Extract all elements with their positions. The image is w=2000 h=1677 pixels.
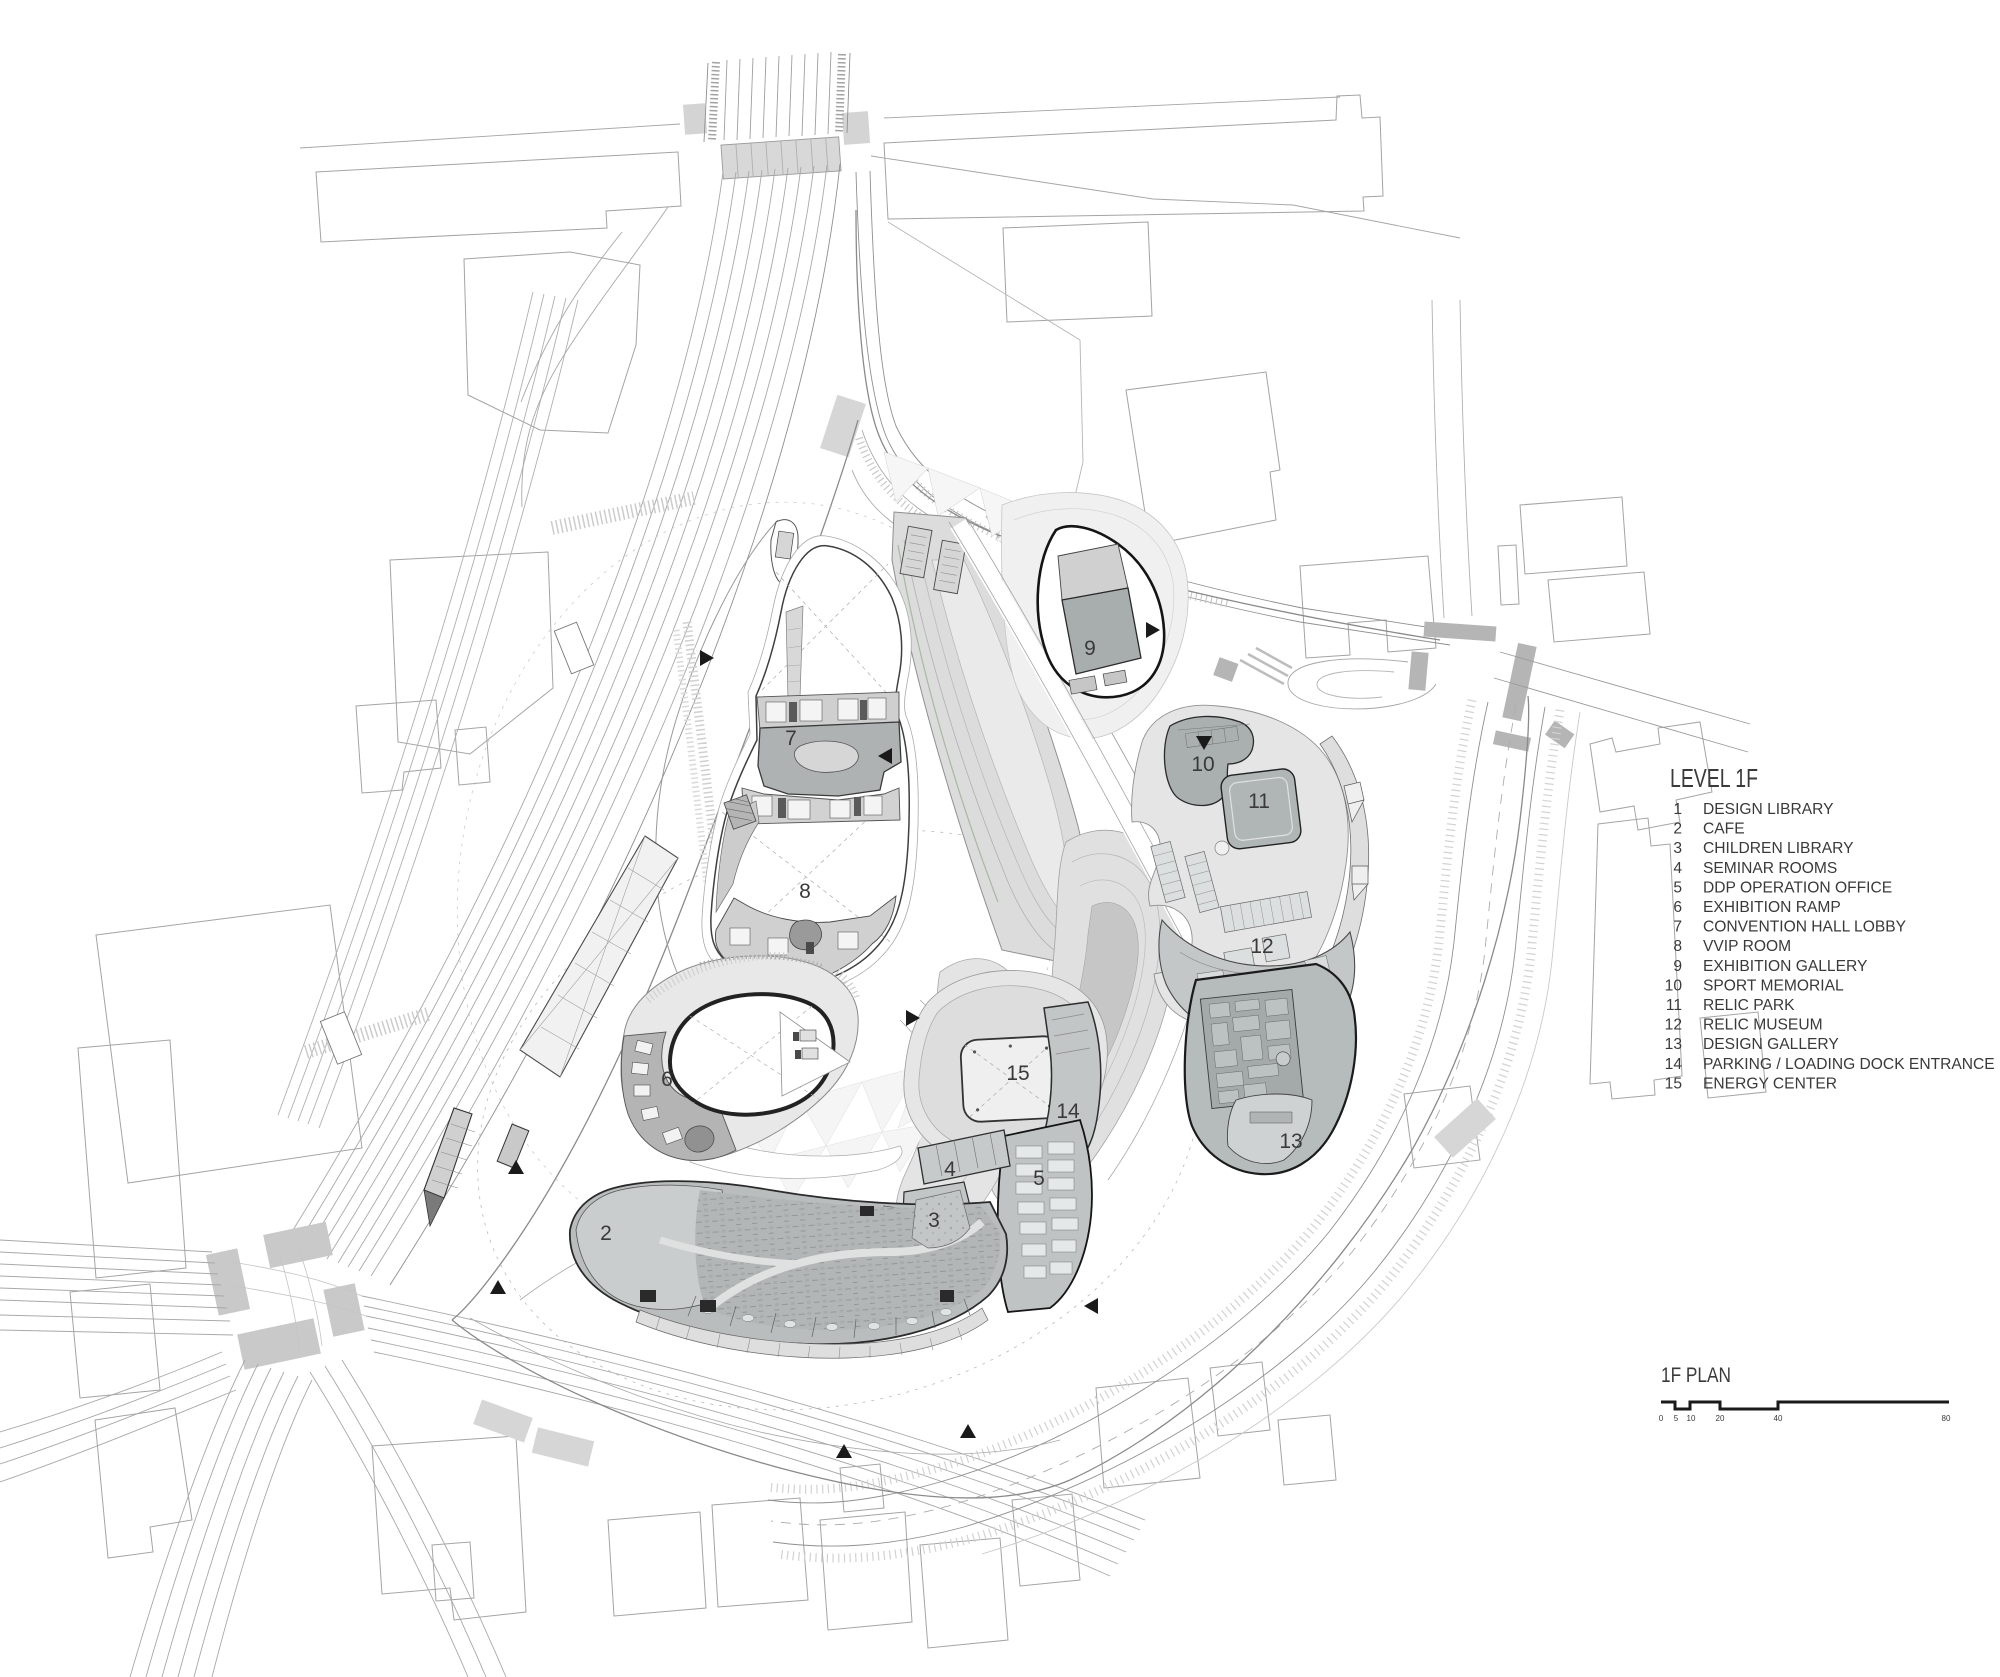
svg-text:3: 3 bbox=[1673, 840, 1682, 857]
svg-text:SEMINAR ROOMS: SEMINAR ROOMS bbox=[1703, 860, 1837, 877]
svg-text:9: 9 bbox=[1673, 958, 1682, 975]
svg-text:DDP OPERATION OFFICE: DDP OPERATION OFFICE bbox=[1703, 879, 1892, 896]
svg-text:13: 13 bbox=[1279, 1130, 1302, 1153]
svg-text:2: 2 bbox=[600, 1222, 612, 1245]
svg-text:7: 7 bbox=[1673, 919, 1682, 936]
svg-text:20: 20 bbox=[1716, 1414, 1725, 1423]
svg-text:12: 12 bbox=[1665, 1017, 1682, 1034]
svg-text:PARKING / LOADING DOCK ENTRANC: PARKING / LOADING DOCK ENTRANCE bbox=[1703, 1056, 1995, 1073]
svg-text:14: 14 bbox=[1056, 1100, 1080, 1123]
svg-text:11: 11 bbox=[1666, 997, 1682, 1014]
svg-text:12: 12 bbox=[1250, 935, 1273, 958]
svg-text:DESIGN LIBRARY: DESIGN LIBRARY bbox=[1703, 801, 1834, 818]
svg-text:RELIC MUSEUM: RELIC MUSEUM bbox=[1703, 1017, 1823, 1034]
svg-text:9: 9 bbox=[1084, 637, 1096, 660]
svg-text:6: 6 bbox=[1673, 899, 1682, 916]
svg-text:4: 4 bbox=[1673, 860, 1682, 877]
svg-text:CONVENTION HALL LOBBY: CONVENTION HALL LOBBY bbox=[1703, 919, 1907, 936]
svg-text:13: 13 bbox=[1665, 1036, 1682, 1053]
svg-text:4: 4 bbox=[944, 1158, 956, 1181]
svg-text:3: 3 bbox=[928, 1209, 940, 1232]
svg-text:5: 5 bbox=[1033, 1167, 1045, 1190]
svg-text:LEVEL 1F: LEVEL 1F bbox=[1670, 765, 1758, 793]
svg-text:1F PLAN: 1F PLAN bbox=[1661, 1364, 1731, 1387]
svg-text:ENERGY CENTER: ENERGY CENTER bbox=[1703, 1075, 1837, 1092]
svg-text:40: 40 bbox=[1774, 1414, 1783, 1423]
svg-text:5: 5 bbox=[1674, 1414, 1679, 1423]
svg-text:1: 1 bbox=[1673, 801, 1682, 818]
svg-text:CHILDREN LIBRARY: CHILDREN LIBRARY bbox=[1703, 840, 1854, 857]
svg-text:8: 8 bbox=[1673, 938, 1682, 955]
svg-text:CAFE: CAFE bbox=[1703, 821, 1745, 838]
svg-text:VVIP ROOM: VVIP ROOM bbox=[1703, 938, 1791, 955]
svg-text:EXHIBITION GALLERY: EXHIBITION GALLERY bbox=[1703, 958, 1868, 975]
svg-text:SPORT MEMORIAL: SPORT MEMORIAL bbox=[1703, 977, 1844, 994]
svg-text:RELIC PARK: RELIC PARK bbox=[1703, 997, 1795, 1014]
svg-text:DESIGN GALLERY: DESIGN GALLERY bbox=[1703, 1036, 1839, 1053]
svg-text:10: 10 bbox=[1687, 1414, 1696, 1423]
svg-text:80: 80 bbox=[1942, 1414, 1951, 1423]
svg-text:10: 10 bbox=[1191, 753, 1214, 776]
svg-text:2: 2 bbox=[1673, 821, 1682, 838]
svg-text:8: 8 bbox=[799, 880, 811, 903]
svg-text:10: 10 bbox=[1665, 977, 1683, 994]
svg-text:7: 7 bbox=[785, 727, 797, 750]
svg-text:5: 5 bbox=[1673, 879, 1682, 896]
svg-text:EXHIBITION RAMP: EXHIBITION RAMP bbox=[1703, 899, 1841, 916]
svg-text:15: 15 bbox=[1006, 1062, 1029, 1085]
svg-text:15: 15 bbox=[1665, 1075, 1683, 1092]
svg-text:11: 11 bbox=[1248, 790, 1270, 813]
svg-text:6: 6 bbox=[661, 1068, 673, 1091]
svg-text:0: 0 bbox=[1659, 1414, 1664, 1423]
svg-text:14: 14 bbox=[1665, 1056, 1683, 1073]
